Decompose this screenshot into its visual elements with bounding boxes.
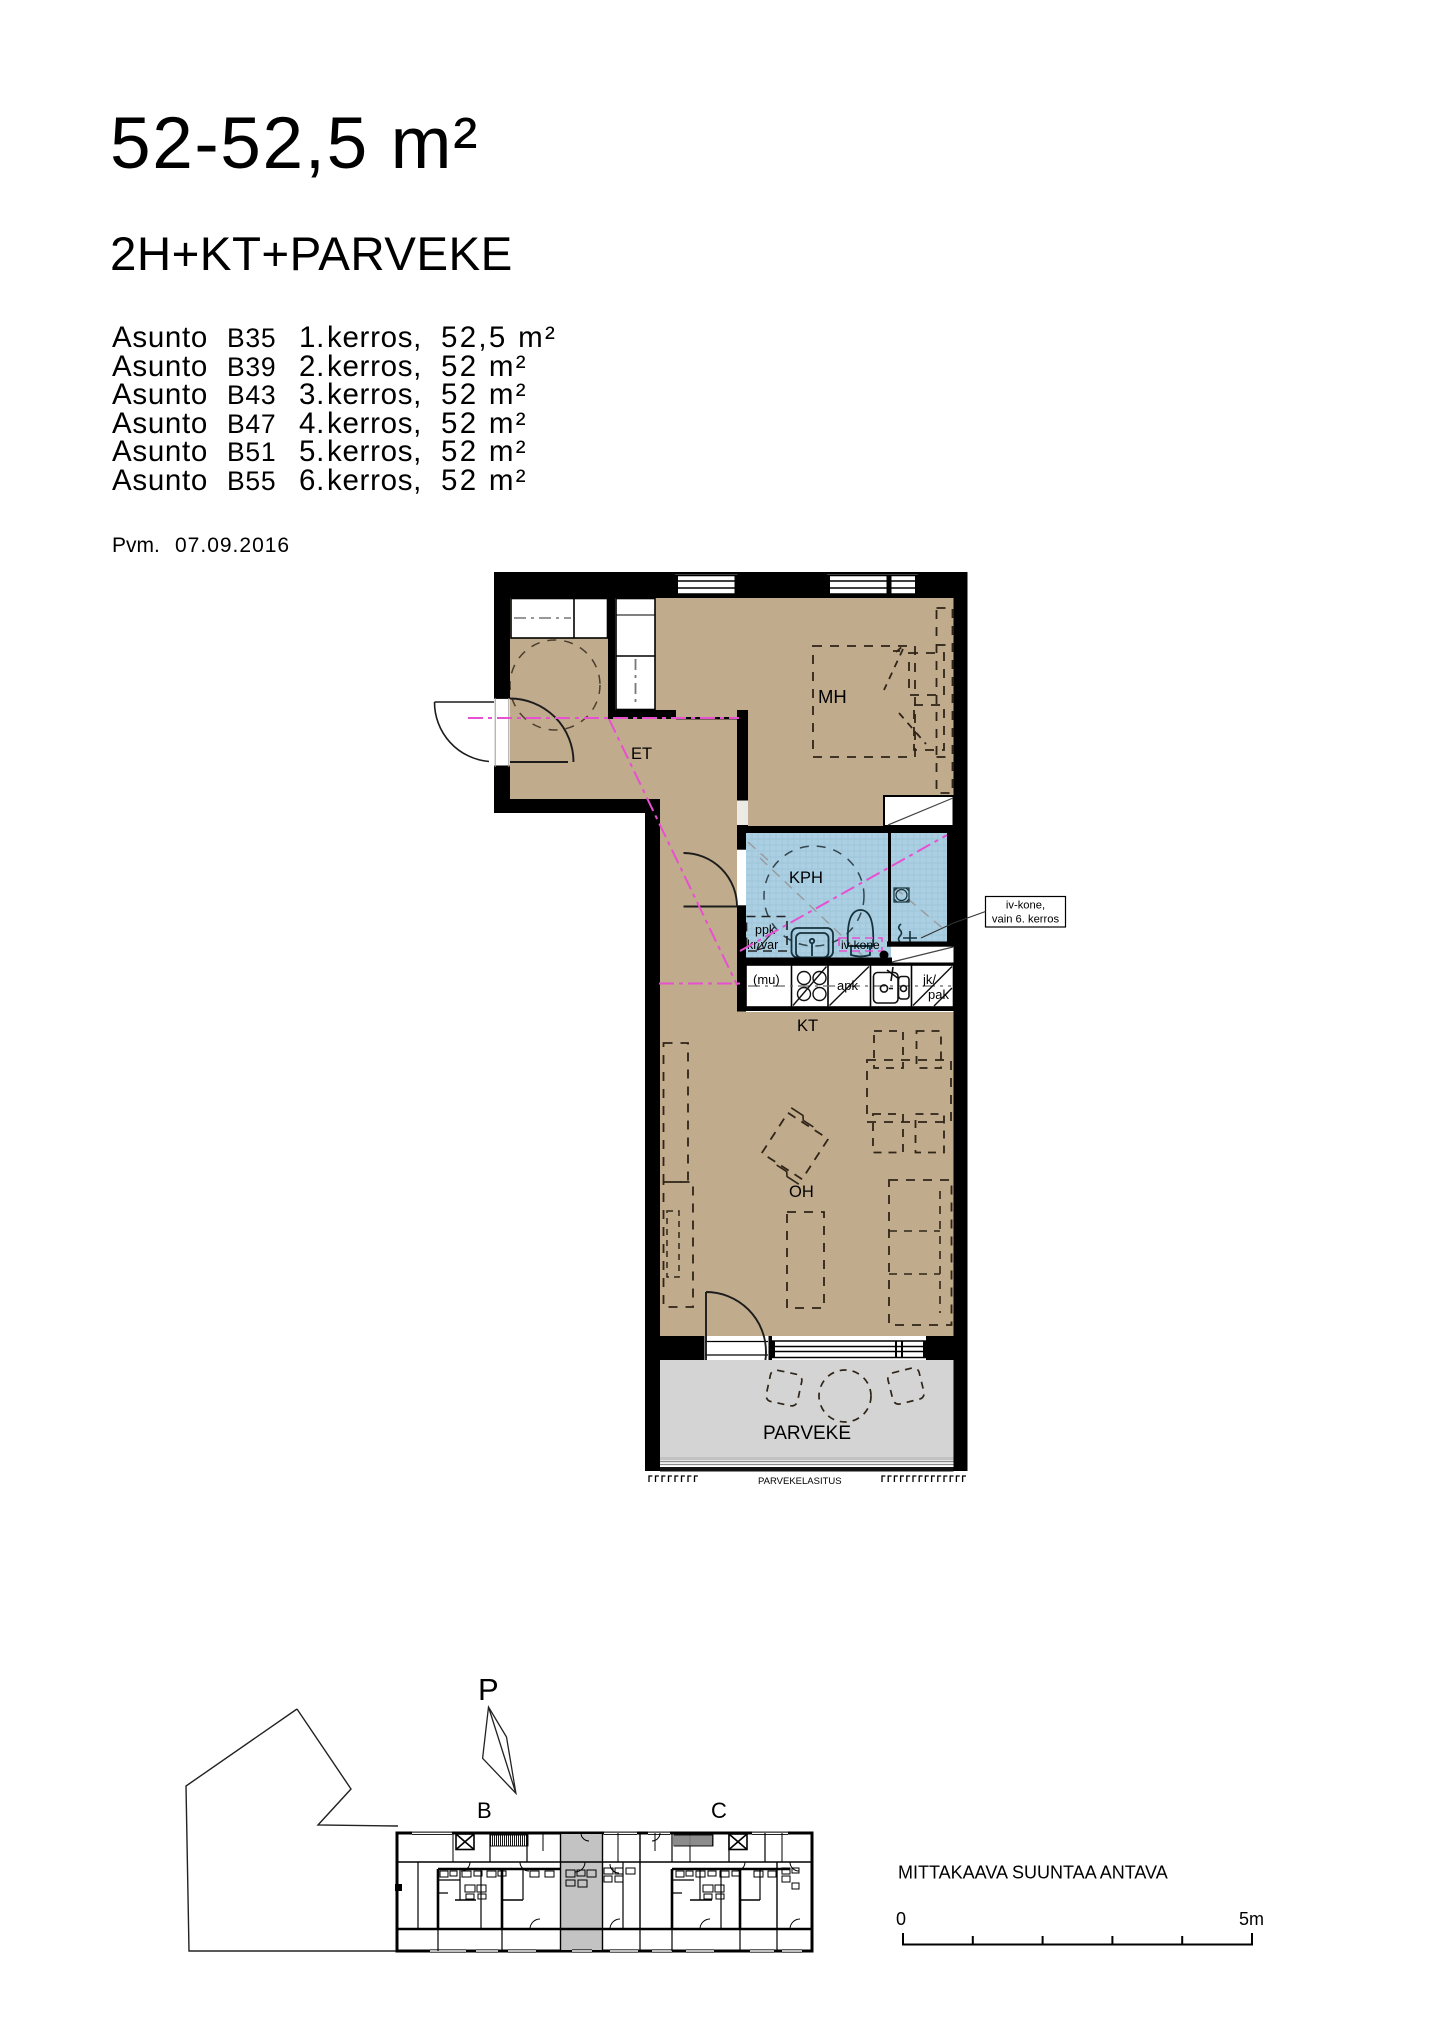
svg-text:52 m²: 52 m² [441,464,528,497]
svg-text:52-52,5 m²: 52-52,5 m² [110,103,479,184]
svg-text:P: P [478,1672,499,1707]
svg-text:kerros,: kerros, [327,464,422,497]
svg-text:B43: B43 [227,380,276,410]
svg-text:apk: apk [837,978,858,993]
svg-text:B47: B47 [227,409,276,439]
svg-text:B51: B51 [227,437,276,467]
svg-text:0: 0 [896,1909,906,1929]
svg-text:C: C [711,1798,727,1823]
svg-text:6.: 6. [299,464,325,497]
svg-text:iv-kone: iv-kone [841,938,880,952]
svg-text:Pvm.: Pvm. [112,534,160,557]
svg-text:B35: B35 [227,323,276,353]
svg-text:Asunto: Asunto [112,464,208,497]
svg-text:MITTAKAAVA SUUNTAA ANTAVA: MITTAKAAVA SUUNTAA ANTAVA [898,1863,1168,1883]
svg-text:ET: ET [631,745,652,763]
svg-text:07.09.2016: 07.09.2016 [175,534,290,557]
svg-text:ppk: ppk [755,923,776,937]
svg-text:B55: B55 [227,466,276,496]
svg-text:PARVEKELASITUS: PARVEKELASITUS [758,1476,842,1487]
svg-text:KPH: KPH [789,869,823,887]
svg-text:jk/: jk/ [922,972,936,987]
svg-text:2H+KT+PARVEKE: 2H+KT+PARVEKE [110,228,513,281]
svg-text:KT: KT [797,1017,818,1035]
svg-text:B: B [477,1798,492,1823]
svg-text:pak: pak [928,987,949,1002]
svg-text:MH: MH [818,686,847,707]
svg-text:B39: B39 [227,352,276,382]
svg-text:vain 6. kerros: vain 6. kerros [992,914,1060,926]
svg-text:PARVEKE: PARVEKE [763,1423,851,1444]
svg-text:OH: OH [789,1183,814,1201]
svg-text:iv-kone,: iv-kone, [1006,900,1045,912]
svg-text:(mu): (mu) [753,972,780,987]
svg-text:5m: 5m [1239,1909,1264,1929]
